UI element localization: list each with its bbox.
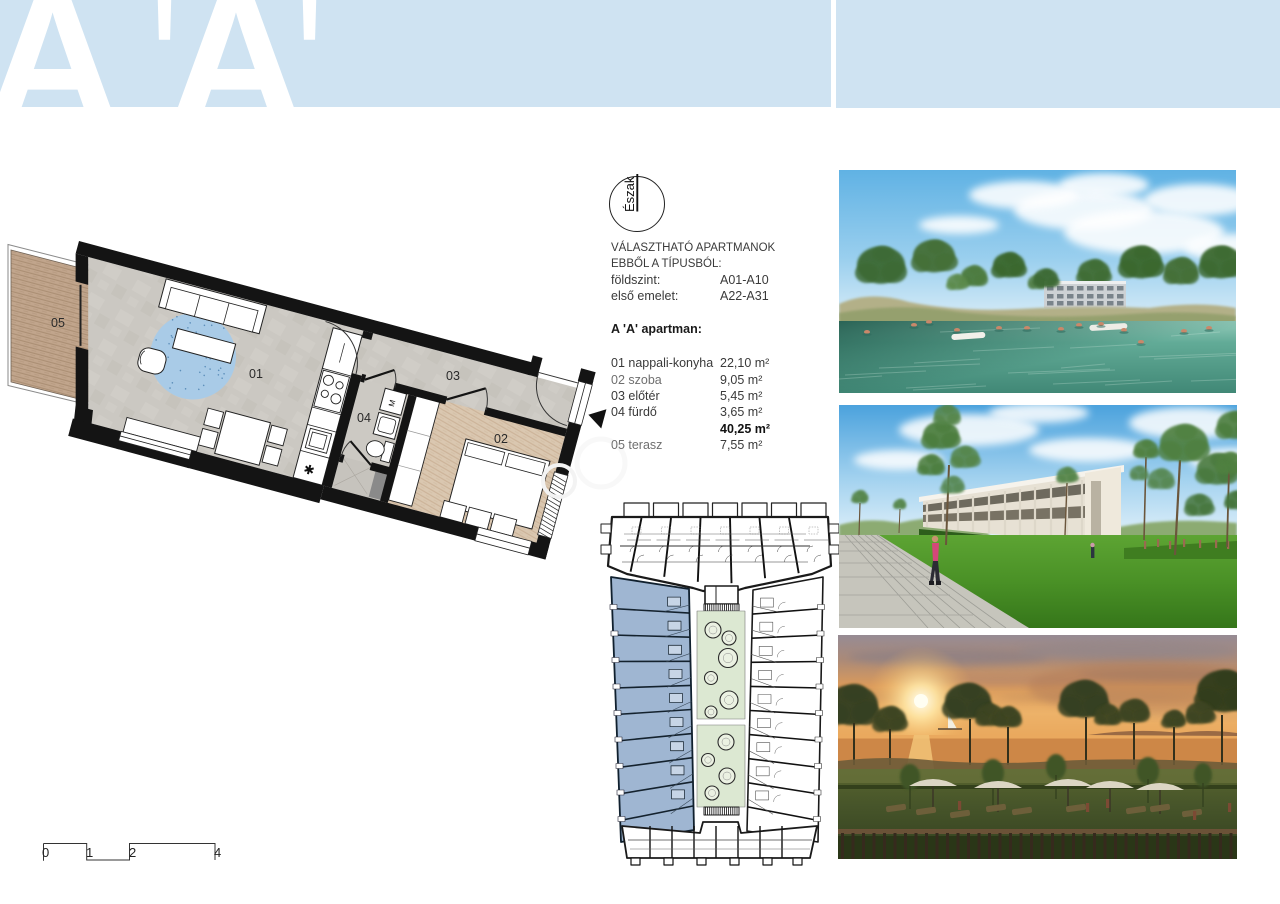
svg-text:05: 05 xyxy=(51,316,65,330)
svg-text:01: 01 xyxy=(249,367,263,381)
svg-text:03: 03 xyxy=(446,369,460,383)
svg-text:2: 2 xyxy=(129,845,136,860)
svg-text:Észak: Észak xyxy=(622,176,637,212)
svg-text:04: 04 xyxy=(357,411,371,425)
svg-text:4: 4 xyxy=(214,845,221,860)
svg-text:1: 1 xyxy=(86,845,93,860)
svg-text:02: 02 xyxy=(494,432,508,446)
svg-text:0: 0 xyxy=(42,845,49,860)
